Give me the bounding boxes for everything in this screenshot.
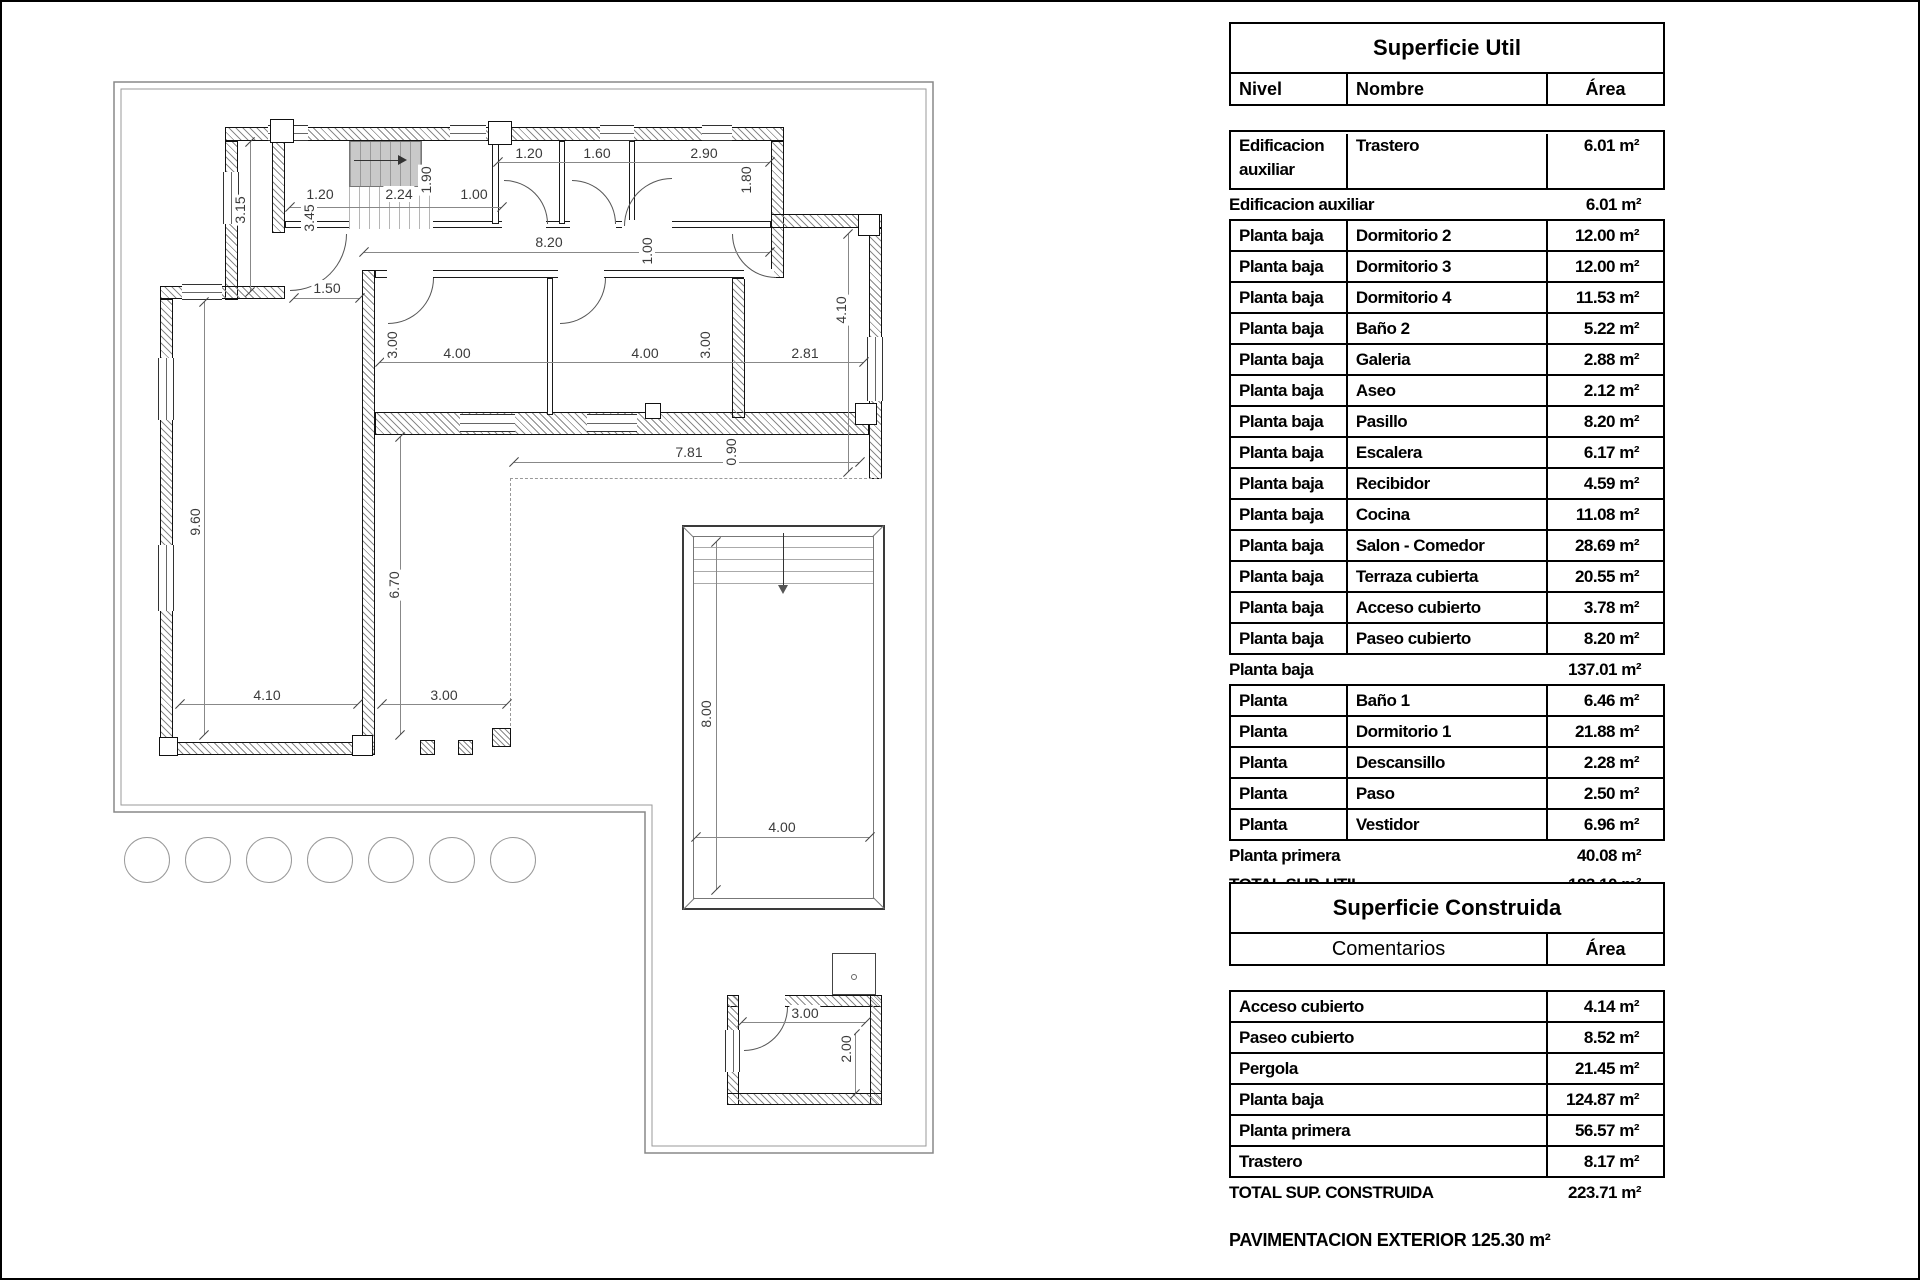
pergola-dashed-edge [510, 478, 882, 479]
table-row: Planta primera56.57 m² [1231, 1114, 1663, 1145]
wall [160, 742, 375, 755]
dimension-line [742, 1022, 866, 1023]
wall [362, 270, 375, 755]
cell-area: 21.88 m² [1546, 717, 1663, 746]
table-row: Planta bajaBaño 25.22 m² [1231, 312, 1663, 343]
table-section: Planta primeraBaño 16.46 m²Planta primer… [1229, 684, 1665, 841]
window [600, 125, 634, 141]
dimension-line [498, 162, 770, 163]
cell-nivel: Planta baja [1231, 531, 1346, 560]
dimension-label: 2.81 [789, 345, 820, 361]
cell-nombre: Trastero [1346, 134, 1546, 188]
door-swing-arc [560, 278, 606, 324]
subtotal-area: 40.08 m² [1547, 841, 1665, 870]
dimension-label: 1.00 [458, 186, 489, 202]
table-row: Planta primeraDormitorio 121.88 m² [1231, 715, 1663, 746]
total-row: TOTAL SUP. CONSTRUIDA223.71 m² [1229, 1178, 1665, 1207]
cell-area: 4.14 m² [1546, 992, 1663, 1021]
dimension-line [855, 1034, 856, 1094]
cell-area: 11.08 m² [1546, 500, 1663, 529]
table-section: Acceso cubierto4.14 m²Paseo cubierto8.52… [1229, 990, 1665, 1178]
dimension-label: 8.00 [698, 698, 714, 729]
cell-nombre: Baño 1 [1346, 686, 1546, 715]
cell-nombre: Escalera [1346, 438, 1546, 467]
cell-nombre: Acceso cubierto [1231, 992, 1546, 1021]
cell-nivel: Planta primera [1231, 686, 1346, 715]
cell-nivel: Planta baja [1231, 345, 1346, 374]
dimension-line [382, 704, 507, 705]
cell-nivel: Planta baja [1231, 593, 1346, 622]
cell-nivel: Edificacion auxiliar [1231, 134, 1346, 188]
cell-area: 8.20 m² [1546, 407, 1663, 436]
tree-circle [368, 837, 414, 883]
cell-area: 11.53 m² [1546, 283, 1663, 312]
dimension-label: 1.20 [304, 186, 335, 202]
dimension-label: 3.00 [697, 329, 713, 360]
cell-nombre: Planta baja [1231, 1085, 1546, 1114]
pillar [855, 403, 877, 425]
subtotal-label: Planta baja [1229, 655, 1547, 684]
cell-nivel: Planta baja [1231, 221, 1346, 250]
cell-nombre: Dormitorio 4 [1346, 283, 1546, 312]
table-row: Planta bajaDormitorio 411.53 m² [1231, 281, 1663, 312]
cell-nombre: Baño 2 [1346, 314, 1546, 343]
cell-area: 6.46 m² [1546, 686, 1663, 715]
cell-nivel: Planta baja [1231, 438, 1346, 467]
cell-area: 2.88 m² [1546, 345, 1663, 374]
window [587, 414, 637, 432]
dimension-line [696, 837, 870, 838]
cell-area: 2.28 m² [1546, 748, 1663, 777]
column-header-comentarios: Comentarios [1231, 934, 1546, 964]
wall [272, 141, 285, 233]
cell-nivel: Planta baja [1231, 624, 1346, 653]
subtotal-row: Planta baja137.01 m² [1229, 655, 1665, 684]
partition-wall [559, 141, 565, 224]
dimension-label: 1.00 [639, 235, 655, 266]
wall [732, 278, 745, 418]
cell-area: 28.69 m² [1546, 531, 1663, 560]
column-header-nombre: Nombre [1346, 74, 1546, 104]
tree-circle [490, 837, 536, 883]
table-row: Planta bajaPasillo8.20 m² [1231, 405, 1663, 436]
cell-nombre: Aseo [1346, 376, 1546, 405]
tree-circle [124, 837, 170, 883]
table-row: Planta primeraBaño 16.46 m² [1231, 686, 1663, 715]
dimension-label: 3.45 [301, 202, 317, 233]
dimension-label: 3.00 [384, 329, 400, 360]
dimension-line [364, 252, 770, 253]
tree-circle [185, 837, 231, 883]
subtotal-label: Edificacion auxiliar [1229, 190, 1547, 219]
pavimentacion-exterior-note: PAVIMENTACION EXTERIOR 125.30 m² [1229, 1230, 1550, 1251]
cell-nombre: Planta primera [1231, 1116, 1546, 1145]
tree-circle [429, 837, 475, 883]
window [450, 125, 486, 141]
pergola-post [458, 740, 473, 755]
cell-area: 2.12 m² [1546, 376, 1663, 405]
table-row: Acceso cubierto4.14 m² [1231, 992, 1663, 1021]
subtotal-row: Planta primera40.08 m² [1229, 841, 1665, 870]
dimension-label: 4.00 [629, 345, 660, 361]
cell-nombre: Salon - Comedor [1346, 531, 1546, 560]
cell-area: 8.20 m² [1546, 624, 1663, 653]
cell-area: 56.57 m² [1546, 1116, 1663, 1145]
cell-nombre: Acceso cubierto [1346, 593, 1546, 622]
table-row: Planta bajaAcceso cubierto3.78 m² [1231, 591, 1663, 622]
dimension-line [180, 704, 358, 705]
cell-area: 2.50 m² [1546, 779, 1663, 808]
window [158, 358, 174, 420]
cell-nombre: Paseo cubierto [1346, 624, 1546, 653]
window [867, 337, 883, 401]
subtotal-area: 6.01 m² [1547, 190, 1665, 219]
dimension-line [294, 298, 360, 299]
subtotal-label: TOTAL SUP. CONSTRUIDA [1229, 1178, 1547, 1207]
pergola-post [420, 740, 435, 755]
dimension-line [514, 462, 860, 463]
cell-nivel: Planta baja [1231, 469, 1346, 498]
subtotal-area: 223.71 m² [1547, 1178, 1665, 1207]
dimension-line [848, 234, 849, 472]
pillar [159, 737, 178, 756]
table-row: Planta bajaEscalera6.17 m² [1231, 436, 1663, 467]
cell-area: 4.59 m² [1546, 469, 1663, 498]
cell-nombre: Terraza cubierta [1346, 562, 1546, 591]
table-row: Pergola21.45 m² [1231, 1052, 1663, 1083]
dimension-label: 6.70 [386, 569, 402, 600]
table-section: Edificacion auxiliarTrastero6.01 m² [1229, 130, 1665, 190]
cell-area: 6.17 m² [1546, 438, 1663, 467]
staircase [349, 141, 422, 187]
dimension-label: 3.15 [232, 194, 248, 225]
cell-nombre: Paso [1346, 779, 1546, 808]
cell-nivel: Planta baja [1231, 283, 1346, 312]
door-opening [739, 994, 785, 1007]
cell-nivel: Planta primera [1231, 748, 1346, 777]
dimension-label: 1.80 [738, 164, 754, 195]
dimension-label: 3.00 [428, 687, 459, 703]
tree-circle [246, 837, 292, 883]
table-row: Planta bajaRecibidor4.59 m² [1231, 467, 1663, 498]
arrow-head-down [778, 585, 788, 594]
table-row: Planta bajaGaleria2.88 m² [1231, 343, 1663, 374]
cell-nivel: Planta primera [1231, 810, 1346, 839]
pool-entry-arrow [783, 533, 784, 585]
stair-direction-arrow [354, 160, 400, 161]
table-header-row: Comentarios Área [1231, 934, 1663, 964]
cell-nombre: Cocina [1346, 500, 1546, 529]
cell-area: 12.00 m² [1546, 221, 1663, 250]
dimension-label: 0.90 [723, 436, 739, 467]
pergola-post [492, 728, 511, 747]
superficie-construida-table: Superficie Construida Comentarios Área A… [1229, 882, 1665, 1207]
cell-nivel: Planta baja [1231, 407, 1346, 436]
table-header-row: Nivel Nombre Área [1231, 74, 1663, 104]
cell-nombre: Trastero [1231, 1147, 1546, 1176]
dimension-label: 4.00 [766, 819, 797, 835]
table-body: Acceso cubierto4.14 m²Paseo cubierto8.52… [1229, 990, 1665, 1207]
dimension-label: 2.00 [838, 1033, 854, 1064]
table-row: Planta primeraVestidor6.96 m² [1231, 808, 1663, 839]
cell-nivel: Planta baja [1231, 562, 1346, 591]
pillar [352, 735, 373, 756]
water-heater-knob [851, 974, 857, 980]
table-row: Planta bajaAseo2.12 m² [1231, 374, 1663, 405]
dimension-label: 1.20 [513, 145, 544, 161]
dimension-label: 4.00 [441, 345, 472, 361]
cell-area: 3.78 m² [1546, 593, 1663, 622]
door-swing-arc [504, 180, 548, 224]
cell-nombre: Descansillo [1346, 748, 1546, 777]
cell-nivel: Planta baja [1231, 376, 1346, 405]
cell-area: 8.52 m² [1546, 1023, 1663, 1052]
column-header-area: Área [1546, 74, 1663, 104]
table-row: Planta baja124.87 m² [1231, 1083, 1663, 1114]
door-swing-arc [744, 1007, 788, 1051]
cell-area: 124.87 m² [1546, 1085, 1663, 1114]
column-header-nivel: Nivel [1231, 74, 1346, 104]
window [158, 545, 174, 611]
pillar [858, 214, 880, 236]
cell-area: 6.96 m² [1546, 810, 1663, 839]
cell-area: 12.00 m² [1546, 252, 1663, 281]
cell-nombre: Pasillo [1346, 407, 1546, 436]
cell-nivel: Planta baja [1231, 500, 1346, 529]
table-row: Planta bajaTerraza cubierta20.55 m² [1231, 560, 1663, 591]
pillar [645, 403, 661, 419]
table-row: Planta bajaDormitorio 212.00 m² [1231, 221, 1663, 250]
dimension-line [380, 362, 864, 363]
cell-nombre: Galeria [1346, 345, 1546, 374]
table-row: Trastero8.17 m² [1231, 1145, 1663, 1176]
cell-nivel: Planta primera [1231, 779, 1346, 808]
pillar [488, 121, 512, 145]
cell-area: 5.22 m² [1546, 314, 1663, 343]
cell-area: 6.01 m² [1546, 134, 1663, 188]
cell-nivel: Planta baja [1231, 314, 1346, 343]
wall [160, 286, 285, 299]
cell-nivel: Planta primera [1231, 717, 1346, 746]
cell-area: 8.17 m² [1546, 1147, 1663, 1176]
dimension-label: 7.81 [673, 444, 704, 460]
dimension-line [204, 302, 205, 735]
cell-area: 20.55 m² [1546, 562, 1663, 591]
window [182, 284, 222, 300]
cell-area: 21.45 m² [1546, 1054, 1663, 1083]
dimension-label: 4.10 [833, 294, 849, 325]
table-title: Superficie Construida [1231, 884, 1663, 934]
dimension-label: 8.20 [533, 234, 564, 250]
partition-wall [547, 278, 553, 415]
wall [870, 995, 882, 1105]
table-row: Planta primeraDescansillo2.28 m² [1231, 746, 1663, 777]
dimension-label: 4.10 [251, 687, 282, 703]
table-header-box: Superficie Construida Comentarios Área [1229, 882, 1665, 966]
subtotal-label: Planta primera [1229, 841, 1547, 870]
cell-nombre: Dormitorio 1 [1346, 717, 1546, 746]
dimension-line [250, 142, 251, 292]
dimension-label: 2.24 [383, 186, 414, 202]
cell-nombre: Dormitorio 3 [1346, 252, 1546, 281]
dimension-label: 1.60 [581, 145, 612, 161]
arrow-head-right [398, 155, 407, 165]
door-swing-arc [388, 278, 434, 324]
table-row: Paseo cubierto8.52 m² [1231, 1021, 1663, 1052]
window [725, 1030, 740, 1072]
window [702, 125, 732, 141]
dimension-label: 3.00 [789, 1005, 820, 1021]
table-body: Edificacion auxiliarTrastero6.01 m²Edifi… [1229, 130, 1665, 899]
table-header-box: Superficie Util Nivel Nombre Área [1229, 22, 1665, 106]
cell-nombre: Pergola [1231, 1054, 1546, 1083]
subtotal-row: Edificacion auxiliar6.01 m² [1229, 190, 1665, 219]
table-row: Planta bajaDormitorio 312.00 m² [1231, 250, 1663, 281]
dimension-label: 9.60 [187, 506, 203, 537]
table-title: Superficie Util [1231, 24, 1663, 74]
cell-nombre: Dormitorio 2 [1346, 221, 1546, 250]
cell-nombre: Vestidor [1346, 810, 1546, 839]
cell-nombre: Paseo cubierto [1231, 1023, 1546, 1052]
table-row: Edificacion auxiliarTrastero6.01 m² [1231, 132, 1663, 188]
dimension-line [290, 207, 502, 208]
table-row: Planta bajaSalon - Comedor28.69 m² [1231, 529, 1663, 560]
pillar [270, 119, 294, 143]
subtotal-area: 137.01 m² [1547, 655, 1665, 684]
dimension-label: 2.90 [688, 145, 719, 161]
table-row: Planta bajaPaseo cubierto8.20 m² [1231, 622, 1663, 653]
table-row: Planta primeraPaso2.50 m² [1231, 777, 1663, 808]
window [460, 414, 515, 432]
tree-circle [307, 837, 353, 883]
dimension-label: 1.90 [418, 164, 434, 195]
dimension-label: 1.50 [311, 280, 342, 296]
table-row: Planta bajaCocina11.08 m² [1231, 498, 1663, 529]
wall [727, 1093, 882, 1105]
table-section: Planta bajaDormitorio 212.00 m²Planta ba… [1229, 219, 1665, 655]
floor-plan-document: 3.151.203.452.241.901.001.201.602.901.80… [0, 0, 1920, 1280]
door-swing-arc [572, 180, 616, 224]
column-header-area: Área [1546, 934, 1663, 964]
cell-nivel: Planta baja [1231, 252, 1346, 281]
pergola-dashed-edge [510, 478, 511, 746]
cell-nombre: Recibidor [1346, 469, 1546, 498]
superficie-util-table: Superficie Util Nivel Nombre Área Edific… [1229, 22, 1665, 899]
